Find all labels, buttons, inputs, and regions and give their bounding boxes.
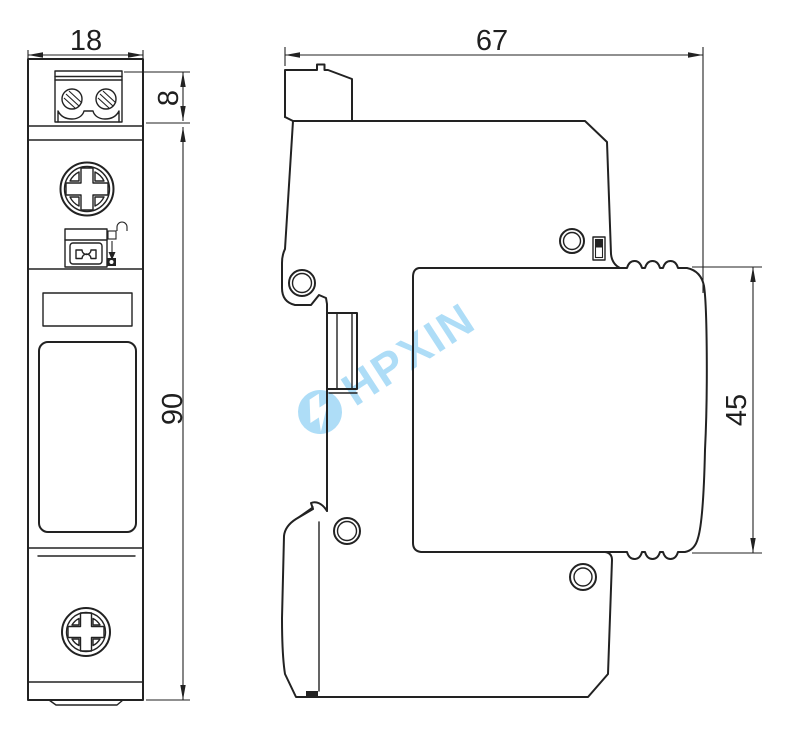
claw-foot	[306, 691, 318, 697]
dim-overall-depth-label: 67	[476, 25, 508, 57]
dim-overall-height: 90	[146, 127, 190, 700]
front-window	[39, 342, 136, 532]
front-release-module	[65, 229, 107, 267]
dim-terminal-height: 8	[124, 72, 190, 123]
front-view	[28, 59, 143, 705]
terminal-screw-right-icon	[96, 89, 116, 109]
side-top-edge	[285, 117, 620, 268]
status-indicator	[593, 237, 605, 260]
body-hole-upper-icon	[560, 229, 584, 253]
side-left-profile	[282, 121, 327, 511]
mount-hole-top-icon	[289, 270, 315, 296]
drawing-canvas: HPXIN	[0, 0, 789, 743]
terminal-clamp	[58, 111, 119, 122]
front-outline	[28, 59, 143, 700]
dim-terminal-height-label: 8	[153, 90, 185, 106]
front-label-window	[43, 293, 132, 326]
watermark: HPXIN	[287, 292, 484, 445]
claw-detail	[296, 507, 319, 691]
front-bottom-screw-icon	[62, 608, 110, 656]
dim-overall-height-label: 90	[157, 393, 189, 425]
side-bottom-profile	[282, 502, 612, 697]
side-terminal-block	[285, 65, 352, 122]
terminal-screw-left-icon	[62, 89, 82, 109]
front-terminal-block	[55, 71, 122, 122]
mount-hole-bottom-icon	[334, 518, 360, 544]
lock-direction-icon	[107, 222, 127, 266]
dim-module-height-label: 45	[721, 394, 753, 426]
dim-overall-depth: 67	[285, 25, 703, 293]
body-hole-lower-icon	[570, 564, 596, 590]
front-top-screw-icon	[61, 163, 114, 216]
dim-front-width-label: 18	[70, 25, 102, 57]
watermark-text: HPXIN	[333, 292, 485, 415]
dim-front-width: 18	[28, 25, 143, 58]
